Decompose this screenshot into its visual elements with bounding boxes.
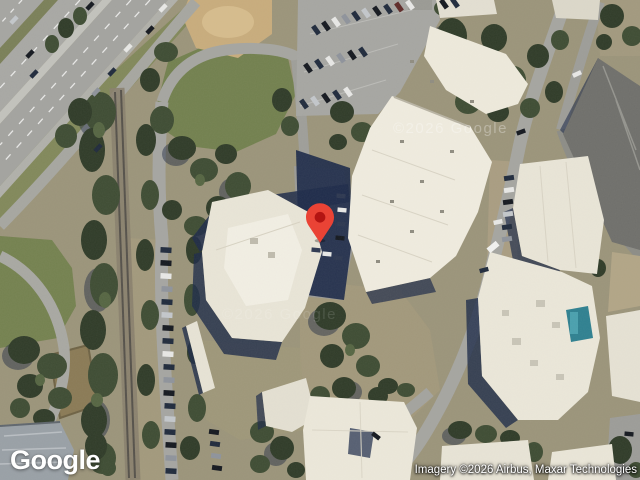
marker-body — [306, 203, 334, 243]
google-logo[interactable]: Google — [10, 445, 100, 476]
satellite-map-view[interactable]: ©2026 Google ©2026 Google Google Imagery… — [0, 0, 640, 480]
map-marker[interactable] — [306, 203, 334, 243]
map-attribution: Imagery ©2026 Airbus, Maxar Technologies — [415, 464, 637, 476]
marker-dot — [315, 212, 326, 223]
